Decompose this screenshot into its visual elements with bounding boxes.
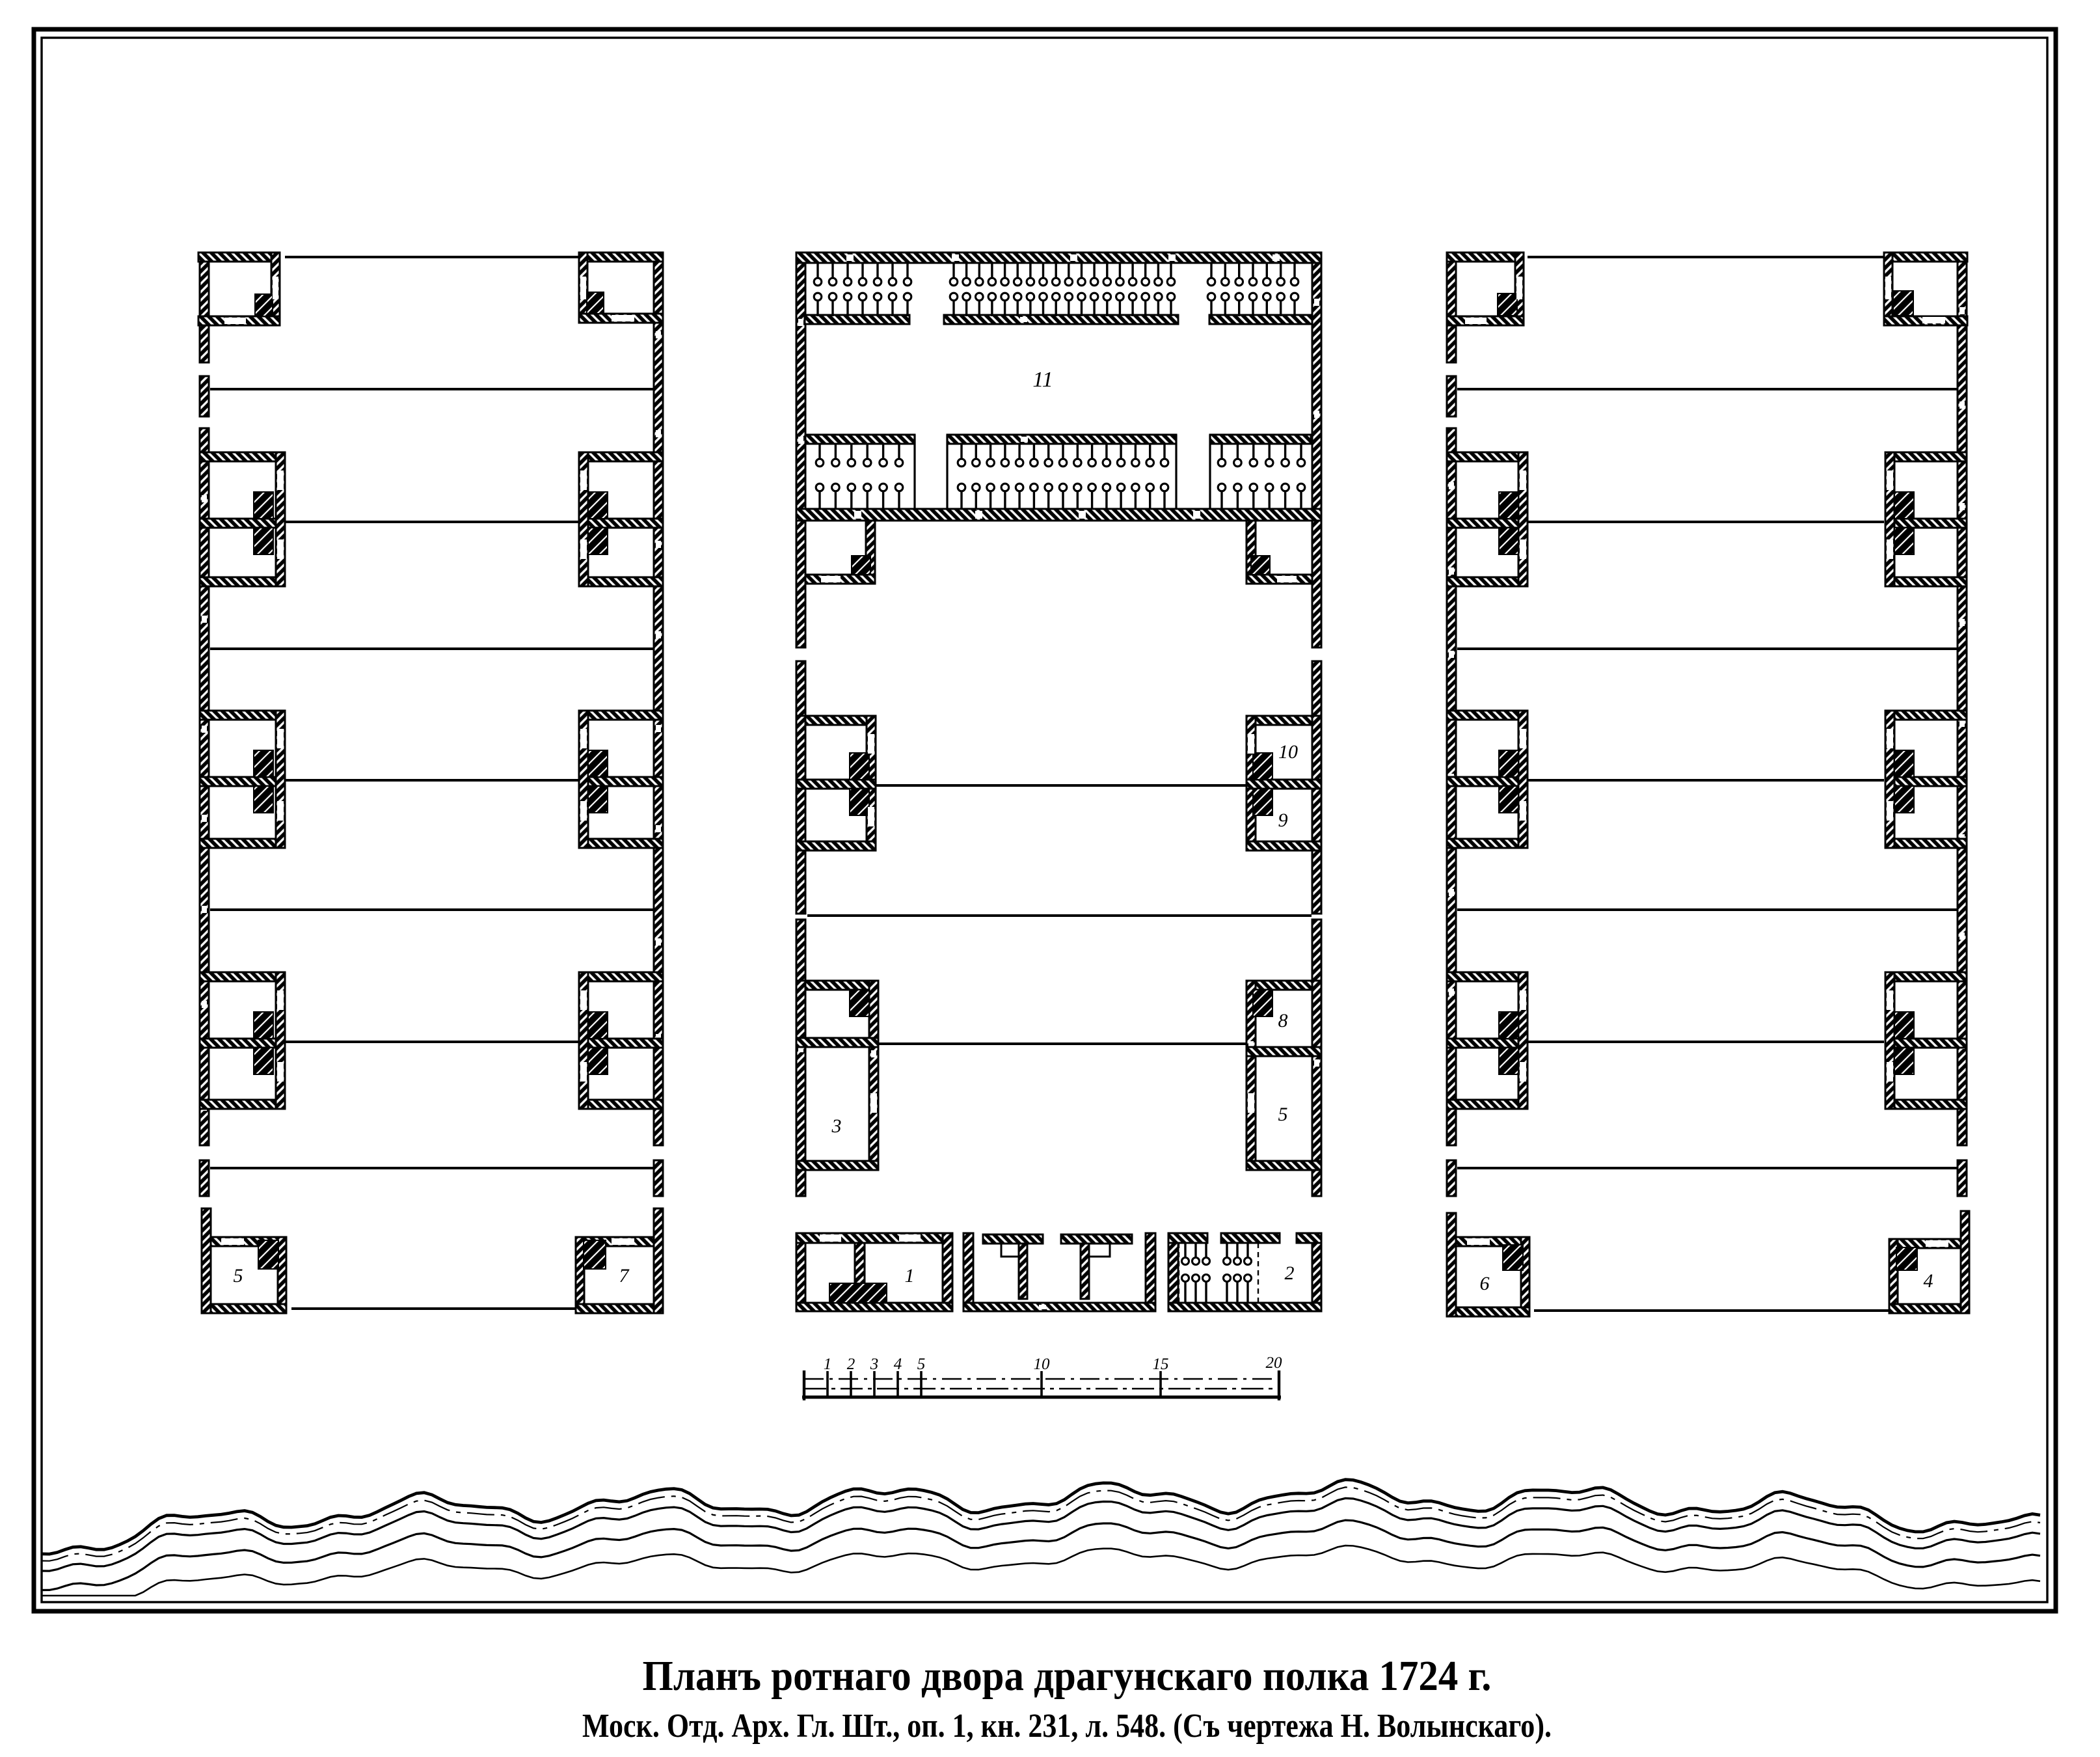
svg-text:Моск. Отд. Арх. Гл. Шт., оп. 1: Моск. Отд. Арх. Гл. Шт., оп. 1, кн. 231,…	[582, 1708, 1552, 1745]
svg-text:3: 3	[831, 1115, 842, 1137]
svg-text:2: 2	[847, 1355, 855, 1373]
svg-text:1: 1	[905, 1265, 915, 1287]
svg-text:10: 10	[1278, 741, 1298, 763]
svg-text:4: 4	[894, 1355, 902, 1373]
svg-text:8: 8	[1278, 1010, 1288, 1031]
svg-text:11: 11	[1032, 368, 1053, 392]
svg-text:5: 5	[917, 1355, 926, 1373]
svg-text:5: 5	[234, 1265, 243, 1287]
svg-text:4: 4	[1924, 1270, 1933, 1292]
svg-text:15: 15	[1153, 1355, 1169, 1373]
svg-text:1: 1	[824, 1355, 832, 1373]
svg-text:3: 3	[870, 1355, 879, 1373]
svg-text:2: 2	[1285, 1262, 1295, 1284]
svg-text:Планъ ротнаго двора драгунскаг: Планъ ротнаго двора драгунскаго полка 17…	[643, 1652, 1492, 1700]
svg-text:10: 10	[1034, 1355, 1051, 1373]
svg-text:7: 7	[619, 1265, 630, 1287]
svg-text:20: 20	[1266, 1354, 1283, 1372]
svg-text:9: 9	[1278, 810, 1288, 831]
svg-text:5: 5	[1278, 1104, 1288, 1125]
svg-text:6: 6	[1480, 1273, 1490, 1294]
